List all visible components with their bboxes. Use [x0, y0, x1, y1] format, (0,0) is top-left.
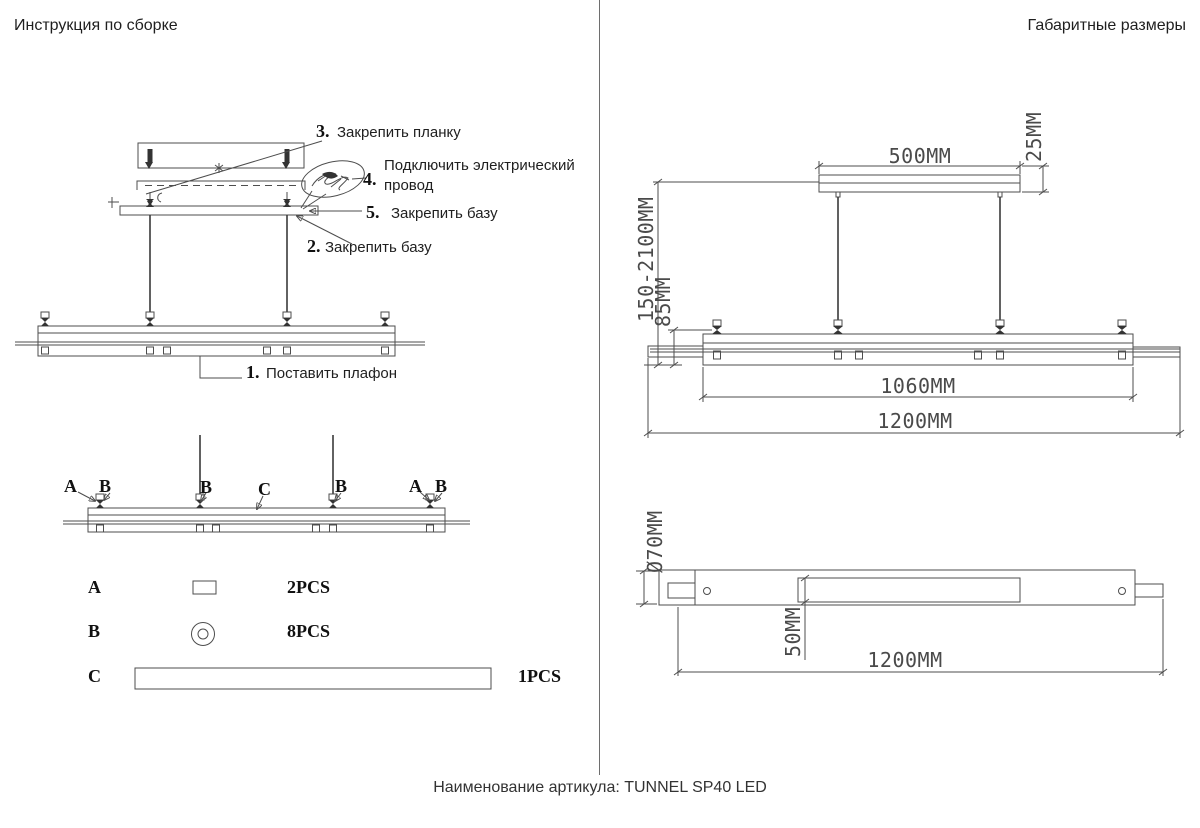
suspension-wires: [150, 215, 287, 312]
step-1-label: Поставить плафон: [266, 365, 397, 382]
profile-height-dim: 50MM: [781, 607, 805, 657]
dimensions-diagram: 500MM 25MM 150-2100MM 85MM 1060MM 1200M: [600, 0, 1200, 770]
callout-label-b1: B: [99, 476, 111, 497]
rectangle-bracket-part-icon: [193, 581, 216, 594]
hanger-height-dim: 85MM: [651, 277, 675, 327]
long-bar-part-icon: [135, 668, 491, 689]
wire-clamps: [41, 312, 389, 326]
callout-label-b4: B: [435, 476, 447, 497]
callout-label-c: C: [258, 479, 271, 500]
part-c-qty: 1PCS: [518, 666, 561, 687]
canopy-height-dim: 25MM: [1022, 112, 1046, 162]
fixture-body: [15, 312, 425, 356]
step-5-label: Закрепить базу: [391, 205, 498, 222]
ceiling-plate: [138, 143, 304, 173]
callout-label-a2: A: [409, 476, 422, 497]
part-a-letter: A: [88, 577, 101, 598]
hook-icon: [158, 193, 162, 202]
diameter-dim: Ø70MM: [643, 510, 667, 573]
step-2-number: 2.: [307, 236, 321, 257]
part-b-qty: 8PCS: [287, 621, 330, 642]
side-view-dimensions: 500MM 25MM 150-2100MM 85MM 1060MM 1200M: [634, 112, 1184, 438]
assembly-diagram: [0, 0, 600, 770]
instruction-sheet: Инструкция по сборке Габаритные размеры: [0, 0, 1200, 828]
part-b-letter: B: [88, 621, 100, 642]
side-view: [648, 175, 1180, 365]
step-2-label: Закрепить базу: [325, 239, 432, 256]
wire-clamps: [712, 320, 1127, 334]
canopy-width-dim: 500MM: [889, 144, 952, 168]
bottom-view-dimensions: Ø70MM 50MM 1200MM: [636, 510, 1167, 676]
callout-label-b3: B: [335, 476, 347, 497]
canopy-base: [108, 197, 318, 215]
step-4-label: Подключить электрический провод: [384, 156, 591, 196]
overall-length-dim: 1200MM: [877, 409, 952, 433]
callout-label-a1: A: [64, 476, 77, 497]
fastener-tabs: [42, 347, 389, 354]
step-4-number: 4.: [363, 169, 377, 190]
wire-detail-balloon: [298, 155, 368, 209]
bottom-length-dim: 1200MM: [867, 648, 942, 672]
part-a-qty: 2PCS: [287, 577, 330, 598]
fastener-tabs: [97, 525, 434, 532]
body-length-dim: 1060MM: [880, 374, 955, 398]
step-3-number: 3.: [316, 121, 330, 142]
mounting-bar: [137, 181, 305, 206]
article-name: Наименование артикула: TUNNEL SP40 LED: [0, 779, 1200, 797]
step-5-number: 5.: [366, 202, 380, 223]
washer-part-icon: [192, 623, 215, 646]
step-3-label: Закрепить планку: [337, 124, 461, 141]
callout-label-b2: B: [200, 477, 212, 498]
part-c-letter: C: [88, 666, 101, 687]
bottom-view: [659, 570, 1163, 605]
step-1-number: 1.: [246, 362, 260, 383]
